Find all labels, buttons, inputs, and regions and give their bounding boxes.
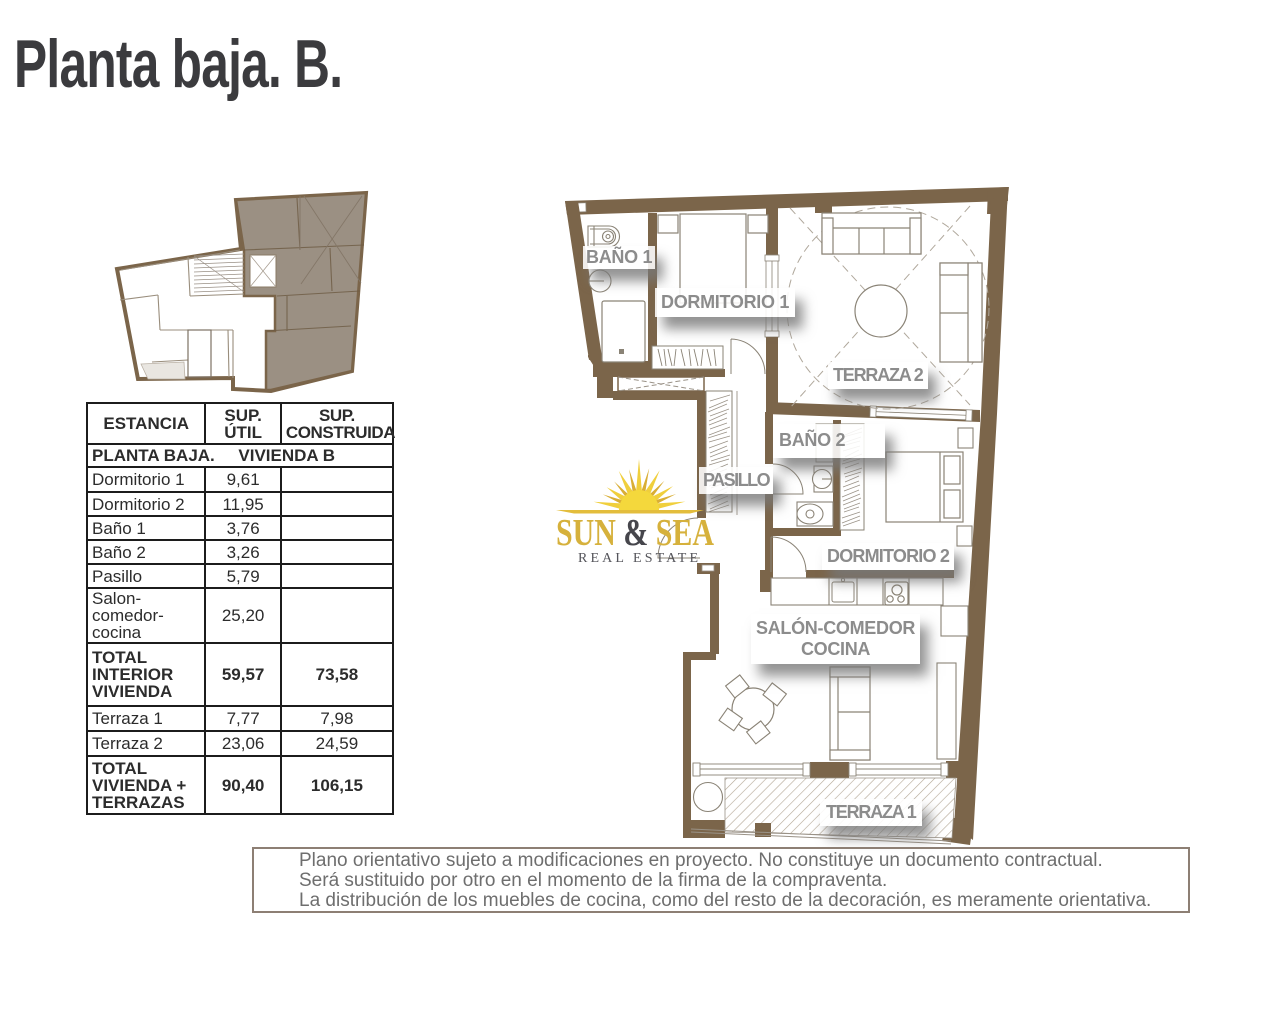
svg-text:SUN & SEA: SUN & SEA [556, 512, 714, 554]
svg-text:REAL ESTATE: REAL ESTATE [578, 551, 698, 566]
